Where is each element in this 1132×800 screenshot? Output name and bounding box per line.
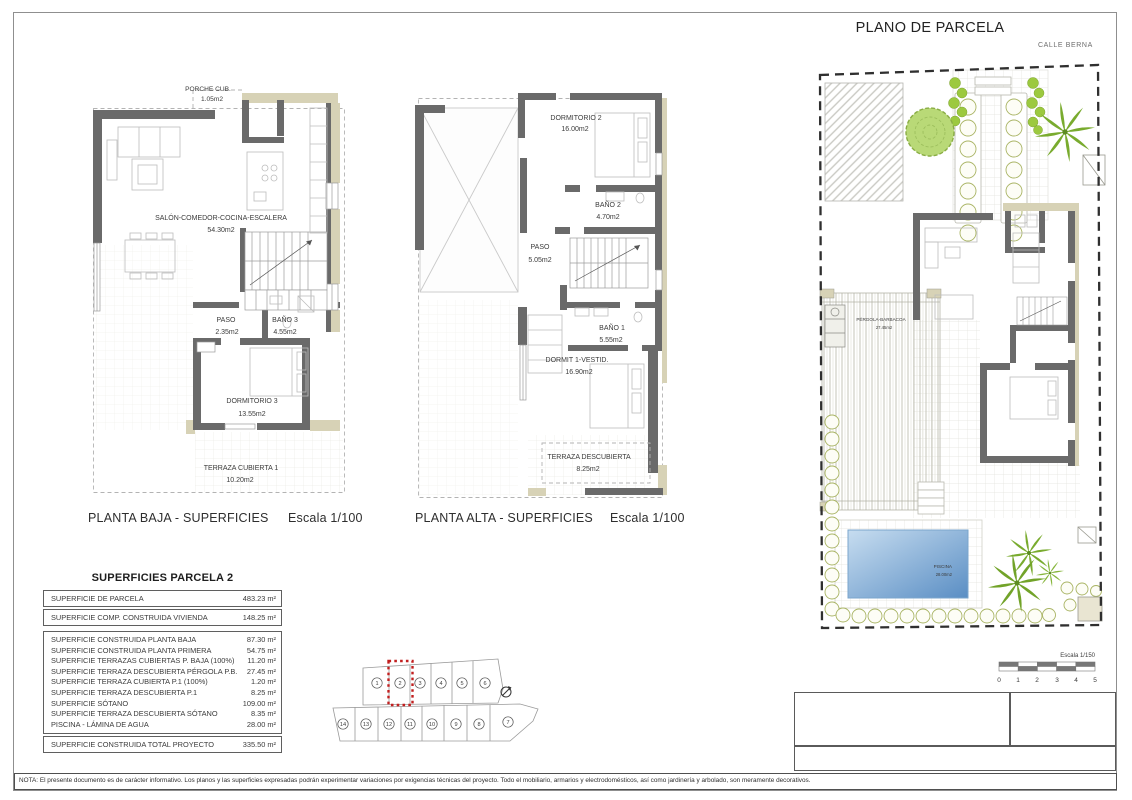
palm-tree-2: [988, 554, 1046, 612]
table-row: SUPERFICIE CONSTRUIDA PLANTA PRIMERA54.7…: [51, 646, 276, 657]
row-value: 483.23 m²: [243, 594, 276, 603]
bush-row-bottom: [836, 608, 1056, 623]
plot-number: 5: [460, 681, 463, 687]
row-value: 87.30 m²: [247, 635, 276, 646]
plot-number: 12: [386, 722, 392, 728]
room-label-dormitorio2: DORMITORIO 2: [550, 115, 601, 122]
pergola-area: 27.45m2: [876, 325, 893, 330]
plot-number: 6: [483, 681, 486, 687]
terrace-tiles: [195, 432, 343, 492]
row-label: SUPERFICIE TERRAZA DESCUBIERTA SÓTANO: [51, 709, 218, 720]
room-area-terraza-cubierta: 10.20m2: [226, 477, 253, 484]
parcel-location-map: 1 2 3 4 5 6 14 13 12 11 10 9 8 7: [330, 645, 545, 770]
exterior-tiles: [94, 245, 193, 430]
row-label: SUPERFICIE TERRAZA DESCUBIERTA PÉRGOLA P…: [51, 667, 237, 678]
room-area-bano2: 4.70m2: [596, 214, 619, 221]
room-label-terraza-cubierta: TERRAZA CUBIERTA 1: [204, 465, 279, 472]
room-area-terraza-desc: 8.25m2: [576, 466, 599, 473]
row-value: 1.20 m²: [251, 677, 276, 688]
room-area-dormitorio3: 13.55m2: [238, 411, 265, 418]
nota-disclaimer: NOTA: El presente documento es de caráct…: [14, 773, 1117, 790]
table-row: SUPERFICIE TERRAZAS CUBIERTAS P. BAJA (1…: [51, 656, 276, 667]
row-value: 11.20 m²: [247, 656, 276, 667]
row-label: SUPERFICIE DE PARCELA: [51, 594, 144, 603]
table-row-vivienda: SUPERFICIE COMP. CONSTRUIDA VIVIENDA 148…: [43, 609, 282, 626]
room-label-terraza-desc: TERRAZA DESCUBIERTA: [547, 454, 631, 461]
room-label-bano2: BAÑO 2: [595, 200, 621, 209]
plot-number: 10: [429, 722, 435, 728]
plot-number: 7: [506, 720, 509, 726]
site-plan: PÉRGOLA-BARBACOA 27.45m2: [805, 15, 1120, 690]
table-row: SUPERFICIE TERRAZA CUBIERTA P.1 (100%)1.…: [51, 677, 276, 688]
pool-area: 28.00m2: [936, 572, 953, 577]
barbacoa: [825, 305, 845, 347]
plot-number: 1: [375, 681, 378, 687]
staircase: [570, 238, 648, 288]
planta-alta-scale: Escala 1/100: [610, 511, 685, 525]
table-row: SUPERFICIE CONSTRUIDA PLANTA BAJA87.30 m…: [51, 635, 276, 646]
plot-number: 8: [477, 722, 480, 728]
row-value: 148.25 m²: [243, 613, 276, 622]
row-value: 8.35 m²: [251, 709, 276, 720]
scale-tick-5: 5: [1093, 677, 1097, 684]
row-value: 8.25 m²: [251, 688, 276, 699]
scale-tick-2: 2: [1035, 677, 1039, 684]
scale-150-label: Escala 1/150: [1060, 653, 1095, 659]
room-area-bano3: 4.55m2: [273, 329, 296, 336]
plot-number-highlighted: 2: [398, 681, 401, 687]
row-label: SUPERFICIE CONSTRUIDA TOTAL PROYECTO: [51, 740, 214, 749]
superficies-title: SUPERFICIES PARCELA 2: [43, 572, 282, 584]
room-label-dormit1: DORMIT 1-VESTID.: [546, 357, 609, 364]
row-value: 28.00 m²: [247, 720, 276, 731]
room-area-porche: 1.05m2: [201, 96, 223, 103]
floor-plan-planta-baja: PORCHE CUB. 1.05m2 SALÓN-COMEDOR-COCINA-…: [60, 80, 390, 520]
row-label: SUPERFICIE COMP. CONSTRUIDA VIVIENDA: [51, 613, 208, 622]
floor-plan-planta-alta: DORMITORIO 2 16.00m2 BAÑO 2 4.70m2 PASO …: [410, 80, 700, 520]
room-label-salon: SALÓN-COMEDOR-COCINA-ESCALERA: [155, 213, 287, 222]
pool-label: PISCINA: [934, 564, 953, 569]
scale-tick-1: 1: [1016, 677, 1020, 684]
superficies-table: SUPERFICIES PARCELA 2 SUPERFICIE DE PARC…: [43, 572, 282, 753]
staircase: [245, 232, 327, 310]
room-label-bano3: BAÑO 3: [272, 315, 298, 324]
room-area-salon: 54.30m2: [207, 227, 234, 234]
plot-number: 4: [439, 681, 442, 687]
row-label: PISCINA - LÁMINA DE AGUA: [51, 720, 149, 731]
row-label: SUPERFICIE TERRAZA CUBIERTA P.1 (100%): [51, 677, 208, 688]
room-label-paso: PASO: [217, 317, 236, 324]
row-label: SUPERFICIE TERRAZA DESCUBIERTA P.1: [51, 688, 197, 699]
table-row: PISCINA - LÁMINA DE AGUA28.00 m²: [51, 720, 276, 731]
garden-steps: [918, 482, 944, 514]
table-row: SUPERFICIE TERRAZA DESCUBIERTA SÓTANO8.3…: [51, 709, 276, 720]
driveway-hatch: [825, 83, 903, 201]
plan-sheet: PORCHE CUB. 1.05m2 SALÓN-COMEDOR-COCINA-…: [0, 0, 1132, 800]
scale-tick-0: 0: [997, 677, 1001, 684]
pergola-label: PÉRGOLA-BARBACOA: [856, 316, 906, 322]
room-area-bano1: 5.55m2: [599, 337, 622, 344]
table-row: SUPERFICIE TERRAZA DESCUBIERTA PÉRGOLA P…: [51, 667, 276, 678]
corner-structures: [1078, 155, 1105, 621]
room-area-dormit1: 16.90m2: [565, 369, 592, 376]
row-label: SUPERFICIE CONSTRUIDA PLANTA PRIMERA: [51, 646, 211, 657]
room-label-dormitorio3: DORMITORIO 3: [226, 398, 277, 405]
row-value: 109.00 m²: [243, 699, 276, 710]
plot-number: 3: [418, 681, 421, 687]
row-label: SUPERFICIE CONSTRUIDA PLANTA BAJA: [51, 635, 196, 646]
round-tree: [906, 108, 954, 156]
table-detail-group: SUPERFICIE CONSTRUIDA PLANTA BAJA87.30 m…: [43, 631, 282, 734]
room-label-porche: PORCHE CUB.: [185, 86, 231, 93]
table-row-total: SUPERFICIE CONSTRUIDA TOTAL PROYECTO 335…: [43, 736, 282, 753]
house-stairs: [1017, 297, 1067, 325]
room-label-bano1: BAÑO 1: [599, 323, 625, 332]
table-row: SUPERFICIE SÓTANO109.00 m²: [51, 699, 276, 710]
plot-number: 13: [363, 722, 369, 728]
room-area-paso: 2.35m2: [215, 329, 238, 336]
terrace-tiles: [528, 435, 650, 495]
planta-baja-scale: Escala 1/100: [288, 511, 363, 525]
plot-number: 11: [407, 722, 413, 728]
room-area-paso: 5.05m2: [528, 257, 551, 264]
titleblock-bottom-cell: [794, 746, 1116, 771]
row-label: SUPERFICIE SÓTANO: [51, 699, 128, 710]
row-value: 27.45 m²: [247, 667, 276, 678]
row-label: SUPERFICIE TERRAZAS CUBIERTAS P. BAJA (1…: [51, 656, 234, 667]
row-value: 54.75 m²: [247, 646, 276, 657]
planta-baja-title: PLANTA BAJA - SUPERFICIES: [88, 511, 269, 525]
titleblock-side-cell: [1010, 692, 1116, 746]
table-row: SUPERFICIE TERRAZA DESCUBIERTA P.18.25 m…: [51, 688, 276, 699]
scale-tick-3: 3: [1055, 677, 1059, 684]
table-row-parcela: SUPERFICIE DE PARCELA 483.23 m²: [43, 590, 282, 607]
double-height-void: [420, 108, 518, 292]
roof-tiles: [419, 300, 518, 496]
scale-bar-150: Escala 1/150 0 1 2 3 4 5: [997, 653, 1097, 684]
room-area-dormitorio2: 16.00m2: [561, 126, 588, 133]
room-label-paso: PASO: [531, 244, 550, 251]
room-labels: DORMITORIO 2 16.00m2 BAÑO 2 4.70m2 PASO …: [528, 115, 631, 473]
plot-number: 14: [340, 722, 346, 728]
pool: PISCINA 28.00m2: [848, 530, 968, 598]
scale-tick-4: 4: [1074, 677, 1078, 684]
titleblock-main-cell: [794, 692, 1010, 746]
plot-number: 9: [454, 722, 457, 728]
planta-alta-title: PLANTA ALTA - SUPERFICIES: [415, 511, 593, 525]
palm-tree-3: [1036, 559, 1064, 587]
row-value: 335.50 m²: [243, 740, 276, 749]
pergola: PÉRGOLA-BARBACOA 27.45m2: [820, 289, 941, 511]
